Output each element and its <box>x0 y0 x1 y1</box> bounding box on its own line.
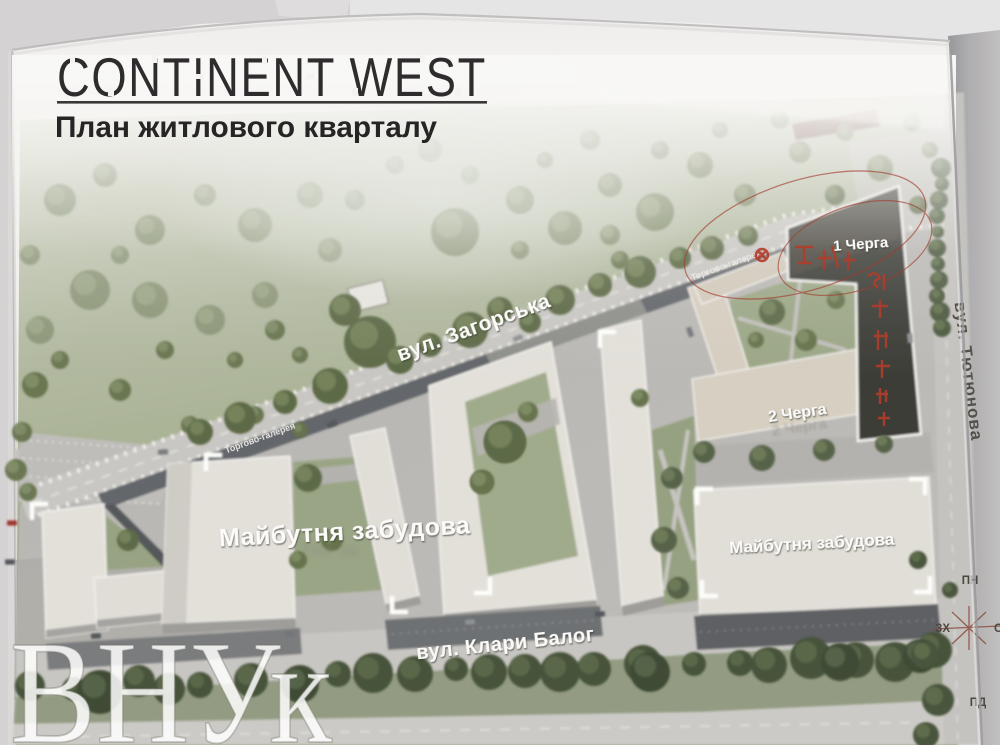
svg-text:ВНУк: ВНУк <box>10 611 333 745</box>
svg-text:С: С <box>994 623 1000 635</box>
svg-text:План житлового кварталу: План житлового кварталу <box>55 111 437 144</box>
svg-text:ЗХ: ЗХ <box>935 623 950 635</box>
